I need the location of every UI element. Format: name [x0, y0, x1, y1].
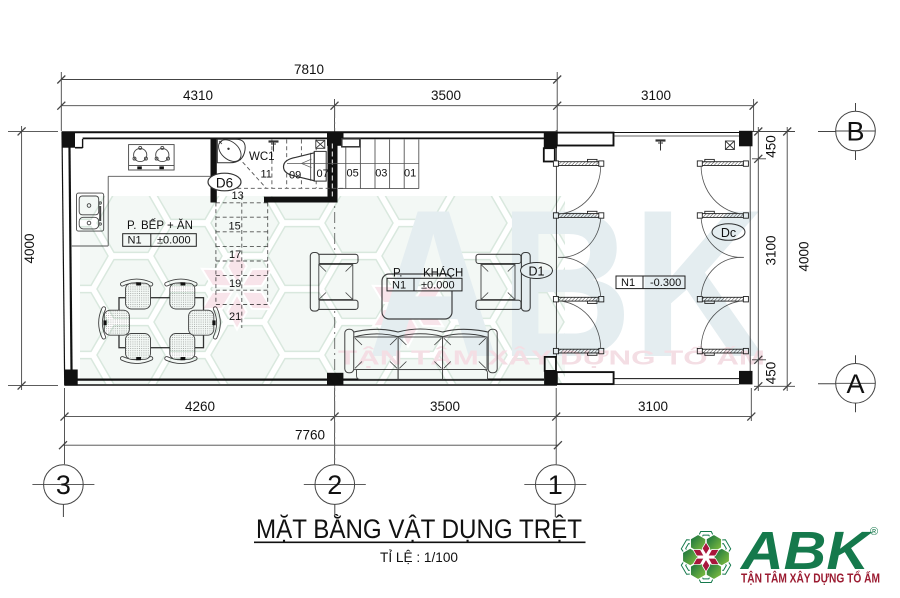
svg-text:09: 09: [289, 170, 301, 182]
svg-text:B: B: [846, 117, 864, 147]
svg-text:3: 3: [56, 470, 71, 500]
svg-text:450: 450: [764, 135, 779, 158]
svg-text:4000: 4000: [797, 241, 812, 271]
svg-text:TỈ LỆ : 1/100: TỈ LỆ : 1/100: [380, 549, 458, 565]
svg-text:D6: D6: [216, 175, 233, 190]
svg-text:2: 2: [327, 470, 342, 500]
svg-text:7760: 7760: [295, 428, 325, 443]
svg-text:05: 05: [347, 168, 359, 180]
svg-text:A: A: [846, 369, 864, 399]
svg-text:MẶT BẰNG VẬT DỤNG TRỆT: MẶT BẰNG VẬT DỤNG TRỆT: [256, 514, 582, 544]
svg-text:4310: 4310: [183, 88, 213, 103]
svg-text:TẬN TÂM XÂY DỰNG TỔ ẤM: TẬN TÂM XÂY DỰNG TỔ ẤM: [338, 346, 765, 370]
svg-text:3500: 3500: [431, 88, 461, 103]
svg-text:1: 1: [548, 470, 563, 500]
svg-text:7810: 7810: [294, 62, 324, 77]
svg-text:3500: 3500: [430, 399, 460, 414]
svg-text:4260: 4260: [185, 399, 215, 414]
svg-text:3100: 3100: [638, 399, 668, 414]
svg-text:07: 07: [317, 168, 329, 180]
svg-text:3100: 3100: [641, 88, 671, 103]
svg-text:TẬN TÂM XÂY DỰNG TỔ ẤM: TẬN TÂM XÂY DỰNG TỔ ẤM: [741, 571, 880, 586]
svg-text:®: ®: [870, 526, 878, 538]
svg-text:450: 450: [764, 362, 779, 385]
svg-text:4000: 4000: [22, 233, 37, 263]
svg-text:WC1: WC1: [249, 151, 275, 163]
svg-text:11: 11: [261, 169, 272, 181]
svg-text:3100: 3100: [764, 235, 779, 265]
